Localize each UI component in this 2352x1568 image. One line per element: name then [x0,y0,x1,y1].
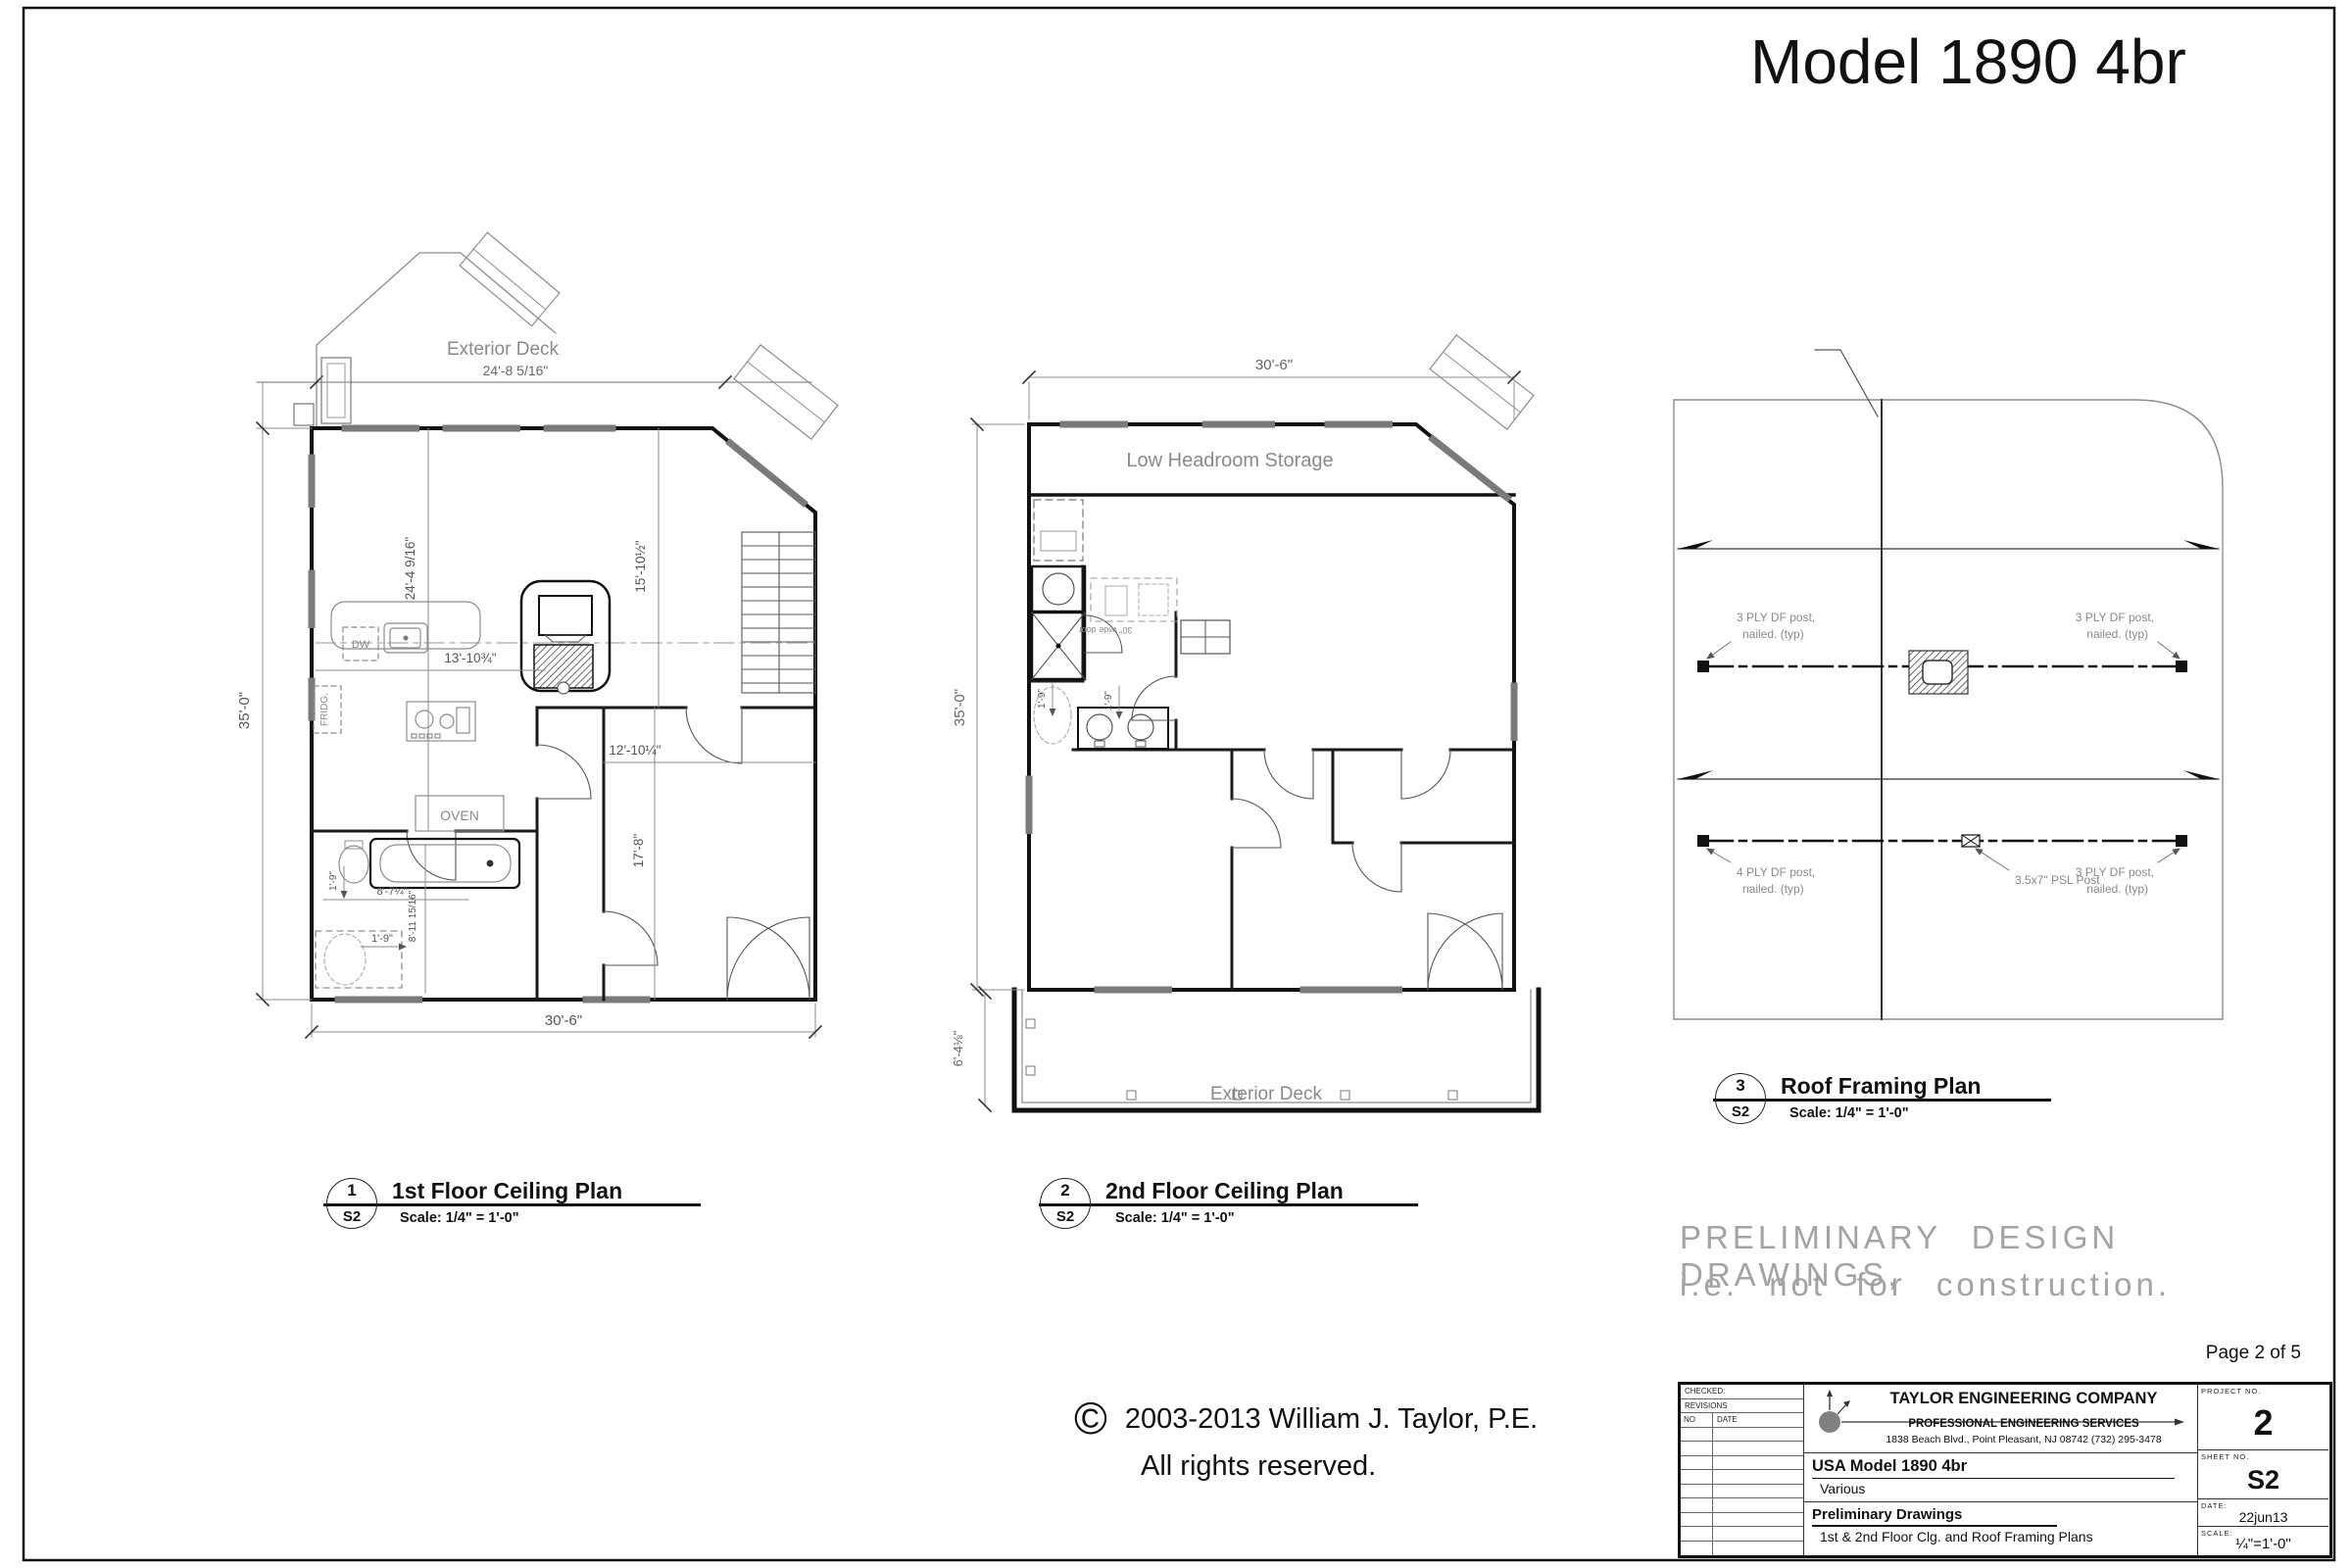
deck-chimney [321,358,351,423]
date-value: 22jun13 [2198,1509,2328,1525]
no-column-header: NO [1681,1413,1713,1427]
dim-width: 30'-6" [1255,357,1293,373]
svg-text:nailed. (typ): nailed. (typ) [2086,627,2148,641]
title-block-right: PROJECT NO. 2 SHEET NO. S2 DATE: 22jun13… [2198,1385,2328,1555]
fireplace [521,581,610,694]
svg-text:nailed. (typ): nailed. (typ) [1742,627,1804,641]
sheet-ref: S2 [1056,1209,1074,1224]
title-block: CHECKED: REVISIONS NO DATE TAYLOR E [1678,1382,2332,1558]
scale-value: ¼"=1'-0" [2198,1536,2328,1552]
svg-text:nailed. (typ): nailed. (typ) [1742,882,1804,896]
detail-number: 1 [347,1182,356,1199]
date-column-header: DATE [1713,1415,1738,1424]
plan3-title: Roof Framing Plan [1781,1073,1981,1100]
drawing-section: Preliminary Drawings 1st & 2nd Floor Clg… [1804,1502,2197,1555]
company-tagline: PROFESSIONAL ENGINEERING SERVICES [1855,1418,2192,1430]
plan3-scale: Scale: 1/4" = 1'-0" [1789,1105,1909,1121]
roof-window [460,232,560,325]
roof-window [734,345,838,439]
preliminary-stamp-line2: i.e. not for construction. [1680,1266,2171,1303]
doors [1085,615,1502,990]
project-no-value: 2 [2198,1402,2328,1444]
project-no-label: PROJECT NO. [2201,1387,2261,1396]
deck-label: Exterior Deck [447,339,560,360]
second-floor-plan: Low Headroom Storage Exterior Deck 30" w… [951,335,1539,1111]
bathroom-fixtures [1032,500,1230,749]
dim-height: 35'-0" [236,692,253,729]
psl-post [1962,835,1980,847]
door-note: 30" wide door [1079,625,1133,635]
company-section: TAYLOR ENGINEERING COMPANY PROFESSIONAL … [1804,1385,2197,1453]
kitchen [314,602,504,831]
plan1-detail-bubble: 1 S2 [326,1178,377,1229]
dim-toilet-offset: 1'-9" [371,933,393,945]
company-address: 1838 Beach Blvd., Point Pleasant, NJ 087… [1855,1434,2192,1445]
vanity [1078,708,1168,749]
plan3-titlebar: 3 S2 Roof Framing Plan Scale: 1/4" = 1'-… [1713,1073,2051,1132]
bathtub [370,839,519,888]
roof-framing-plan: 3 PLY DF post, nailed. (typ) 3 PLY DF po… [1674,350,2223,1019]
ridge-leader [1815,350,1878,416]
dim-toilet-offset: 1'-9" [1037,689,1048,709]
dim-height: 35'-0" [952,689,968,726]
drawing-type: Preliminary Drawings [1812,1506,2057,1527]
dim-v2: 15'-10½" [633,540,648,592]
detail-number: 2 [1060,1182,1069,1199]
svg-text:nailed. (typ): nailed. (typ) [2086,882,2148,896]
windows [312,428,804,1000]
copyright-line1: 2003-2013 William J. Taylor, P.E. [1125,1403,1538,1435]
revisions-table: CHECKED: REVISIONS NO DATE [1681,1385,1804,1555]
chimney [1909,651,1968,694]
dim-sink-offset: 1'-9" [328,871,339,891]
plan3-detail-bubble: 3 S2 [1715,1073,1766,1124]
copyright-line2: All rights reserved. [1141,1445,1538,1488]
dim-v3: 17'-8" [631,834,646,868]
company-name: TAYLOR ENGINEERING COMPANY [1855,1390,2192,1408]
staircase [742,532,815,693]
dim-bath-w: 8'-7¼" [376,886,407,898]
storage-label: Low Headroom Storage [1126,450,1333,471]
sheet-no-label: SHEET NO. [2201,1452,2249,1461]
model-title: Model 1890 4br [1750,25,2186,98]
project-section: USA Model 1890 4br Various [1804,1453,2197,1502]
plan2-title: 2nd Floor Ceiling Plan [1105,1178,1344,1204]
exterior-walls [312,428,815,1000]
plan2-scale: Scale: 1/4" = 1'-0" [1115,1210,1235,1226]
dim-h2: 12'-10¼" [609,743,661,758]
copyright-icon: © [1074,1393,1107,1444]
dim-bath-h: 8'-11 15/16" [408,890,418,942]
dim-sink-offset: 1'-9" [1103,691,1114,710]
dw-label: DW [352,639,370,651]
title-block-middle: TAYLOR ENGINEERING COMPANY PROFESSIONAL … [1804,1385,2198,1555]
detail-number: 3 [1736,1077,1744,1094]
dim-width: 30'-6" [545,1012,582,1029]
sheet-no-value: S2 [2198,1465,2328,1495]
roof-outline [1674,400,2223,1019]
sheet-contents: 1st & 2nd Floor Clg. and Roof Framing Pl… [1820,1529,2197,1544]
ann-post-bottom-left: 4 PLY DF post, [1737,865,1815,879]
project-series: Various [1820,1481,2197,1496]
ann-post-top-right: 3 PLY DF post, [2076,611,2154,624]
copyright-notice: ©2003-2013 William J. Taylor, P.E. All r… [1074,1392,1538,1488]
roof-window [1430,335,1534,429]
ann-post-top-left: 3 PLY DF post, [1737,611,1815,624]
plan2-detail-bubble: 2 S2 [1040,1178,1091,1229]
ann-post-bottom-right: 3 PLY DF post, [2076,865,2154,879]
plan1-texts: Exterior Deck 24'-8 5/16" 24'-4 9/16" 15… [236,339,661,1029]
plan1-title: 1st Floor Ceiling Plan [392,1178,622,1204]
revisions-label: REVISIONS [1681,1399,1803,1414]
sheet-ref: S2 [343,1209,361,1224]
plan1-titlebar: 1 S2 1st Floor Ceiling Plan Scale: 1/4" … [323,1178,701,1237]
dim-h1: 13'-10¾" [444,651,496,665]
dimension-lines [257,382,821,1038]
deck-label: Exterior Deck [1210,1084,1323,1104]
oven-label: OVEN [440,808,479,823]
checked-label: CHECKED: [1681,1385,1803,1399]
plan1-scale: Scale: 1/4" = 1'-0" [400,1210,519,1226]
sheet-border [24,8,2334,1560]
wd-closet [1034,500,1083,561]
sheet-ref: S2 [1732,1104,1749,1119]
dim-v1: 24'-4 9/16" [403,537,417,601]
plans-canvas: Exterior Deck 24'-8 5/16" 24'-4 9/16" 15… [0,0,2352,1568]
drawing-sheet: Exterior Deck 24'-8 5/16" 24'-4 9/16" 15… [0,0,2352,1568]
dimension-lines [971,371,1520,1111]
deck-dim: 24'-8 5/16" [483,363,549,378]
fridge-label: FRIDG. [319,693,330,726]
first-floor-plan: Exterior Deck 24'-8 5/16" 24'-4 9/16" 15… [236,232,838,1038]
page-number: Page 2 of 5 [2168,1343,2301,1364]
project-model: USA Model 1890 4br [1812,1457,2175,1479]
dim-deck-depth: 6'-4⅛" [951,1030,965,1066]
plan2-titlebar: 2 S2 2nd Floor Ceiling Plan Scale: 1/4" … [1039,1178,1418,1237]
